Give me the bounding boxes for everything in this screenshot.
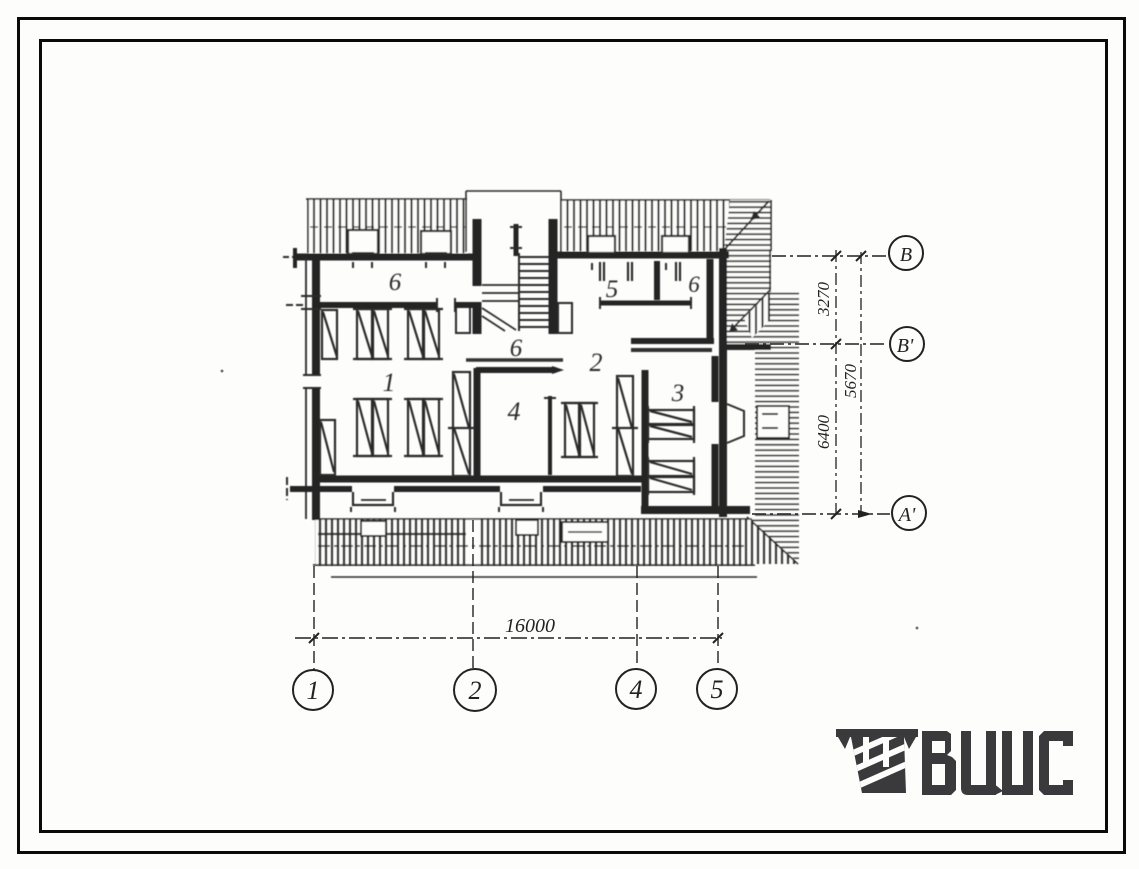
svg-text:1: 1 <box>383 368 396 397</box>
svg-text:В': В' <box>897 335 914 357</box>
svg-text:1: 1 <box>307 676 320 705</box>
svg-text:2: 2 <box>469 676 482 705</box>
svg-text:4: 4 <box>630 675 643 704</box>
svg-text:3270: 3270 <box>814 282 833 318</box>
svg-text:3: 3 <box>671 380 685 407</box>
svg-text:6: 6 <box>389 269 402 296</box>
svg-text:6400: 6400 <box>814 415 833 450</box>
svg-text:5: 5 <box>711 675 724 704</box>
svg-text:6: 6 <box>510 335 523 362</box>
svg-text:6: 6 <box>688 272 700 297</box>
svg-text:5: 5 <box>606 276 619 303</box>
svg-text:5670: 5670 <box>841 364 860 399</box>
svg-text:16000: 16000 <box>505 615 555 637</box>
svg-text:В: В <box>900 244 912 266</box>
svg-text:4: 4 <box>508 397 521 426</box>
svg-text:2: 2 <box>590 348 603 377</box>
svg-text:А': А' <box>897 504 916 526</box>
